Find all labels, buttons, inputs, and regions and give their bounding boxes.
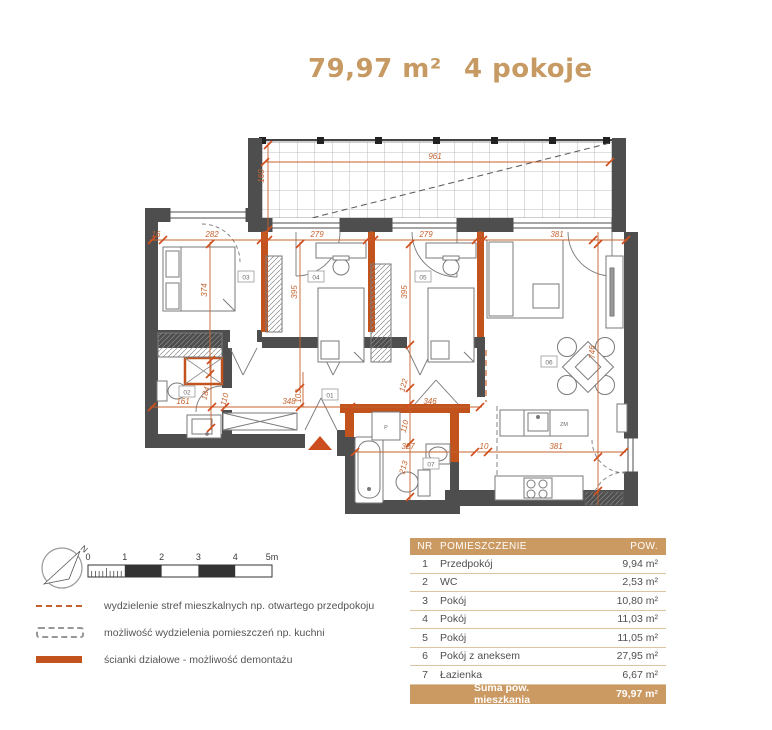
wc-sink xyxy=(187,415,221,438)
svg-text:184: 184 xyxy=(200,385,212,401)
legend-item-partition-possible: możliwość wydzielenia pomieszczeń np. ku… xyxy=(36,619,406,646)
svg-text:103: 103 xyxy=(294,389,303,403)
table-row: 2WC2,53 m² xyxy=(410,574,666,593)
wardrobe-hatched xyxy=(158,333,222,357)
svg-text:110: 110 xyxy=(399,419,411,434)
wardrobe-strip-2 xyxy=(371,264,391,362)
svg-text:282: 282 xyxy=(204,230,219,239)
table-header: NR POMIESZCZENIE POW. xyxy=(410,538,666,555)
svg-text:1: 1 xyxy=(122,552,127,562)
bathtub xyxy=(355,437,383,503)
tall-cabinet xyxy=(617,404,627,432)
svg-text:8: 8 xyxy=(478,230,483,239)
legend-item-demountable: ścianki działowe - możliwość demontażu xyxy=(36,646,406,673)
legend-item-zones: wydzielenie stref mieszkalnych np. otwar… xyxy=(36,592,406,619)
svg-text:16: 16 xyxy=(152,230,161,239)
solid-wall-icon xyxy=(36,656,82,663)
scale-bar: 0 1 2 3 4 5m xyxy=(85,552,278,577)
room-badge-06: 06 xyxy=(545,360,553,367)
kitchen-counter-top xyxy=(500,410,588,436)
svg-text:4: 4 xyxy=(233,552,238,562)
svg-text:5m: 5m xyxy=(266,552,279,562)
compass: N xyxy=(42,543,90,588)
kitchen-counter-bottom xyxy=(495,476,583,500)
room-badge-02: 02 xyxy=(183,390,191,397)
floorplan-page: 79,97 m² 4 pokoje xyxy=(0,0,772,730)
double-bed xyxy=(163,247,235,311)
svg-text:0: 0 xyxy=(85,552,90,562)
room04-desk-chair xyxy=(316,243,366,275)
dashed-wall-icon xyxy=(36,627,84,638)
room-badge-03: 03 xyxy=(242,275,250,282)
svg-text:381: 381 xyxy=(549,442,562,451)
svg-text:395: 395 xyxy=(400,285,409,299)
washer-label: P xyxy=(384,425,388,431)
shaft-box xyxy=(185,358,222,384)
balcony xyxy=(256,137,618,230)
svg-text:8: 8 xyxy=(369,230,374,239)
wall-hatched-section xyxy=(585,492,623,505)
legend: wydzielenie stref mieszkalnych np. otwar… xyxy=(36,592,406,673)
table-row: 5Pokój11,05 m² xyxy=(410,629,666,648)
wardrobe-strip-1 xyxy=(266,256,282,332)
dishwasher-label: ZM xyxy=(560,422,568,428)
svg-text:374: 374 xyxy=(200,283,209,297)
svg-text:961: 961 xyxy=(428,152,441,161)
hall-wardrobe xyxy=(223,413,297,430)
room-table: NR POMIESZCZENIE POW. 1Przedpokój9,94 m²… xyxy=(410,538,666,704)
tv-cabinet xyxy=(606,256,623,328)
table-row: 1Przedpokój9,94 m² xyxy=(410,555,666,574)
room04-bed xyxy=(318,288,364,362)
svg-text:395: 395 xyxy=(290,285,299,299)
svg-text:279: 279 xyxy=(418,230,433,239)
svg-text:160: 160 xyxy=(257,169,266,183)
table-row: 6Pokój z aneksem27,95 m² xyxy=(410,648,666,667)
svg-text:746: 746 xyxy=(588,345,597,359)
svg-text:161: 161 xyxy=(176,397,189,406)
dining-table xyxy=(558,338,615,395)
svg-text:381: 381 xyxy=(550,230,563,239)
table-footer: Suma pow. mieszkania 79,97 m² xyxy=(410,685,666,704)
table-row: 4Pokój11,03 m² xyxy=(410,611,666,630)
table-row: 3Pokój10,80 m² xyxy=(410,592,666,611)
svg-text:327: 327 xyxy=(401,442,415,451)
svg-text:2: 2 xyxy=(159,552,164,562)
room-badge-07: 07 xyxy=(427,462,435,469)
dashed-line-icon xyxy=(36,605,82,607)
room-badge-05: 05 xyxy=(419,275,427,282)
room-badge-04: 04 xyxy=(312,275,320,282)
svg-text:8: 8 xyxy=(262,230,267,239)
svg-text:10: 10 xyxy=(480,442,489,451)
svg-text:279: 279 xyxy=(309,230,324,239)
svg-text:110: 110 xyxy=(219,392,231,407)
sofa xyxy=(487,240,563,318)
svg-text:3: 3 xyxy=(196,552,201,562)
room-badge-01: 01 xyxy=(326,393,334,400)
room05-bed xyxy=(428,288,474,362)
svg-text:346: 346 xyxy=(423,397,437,406)
entrance-arrow xyxy=(308,436,332,450)
